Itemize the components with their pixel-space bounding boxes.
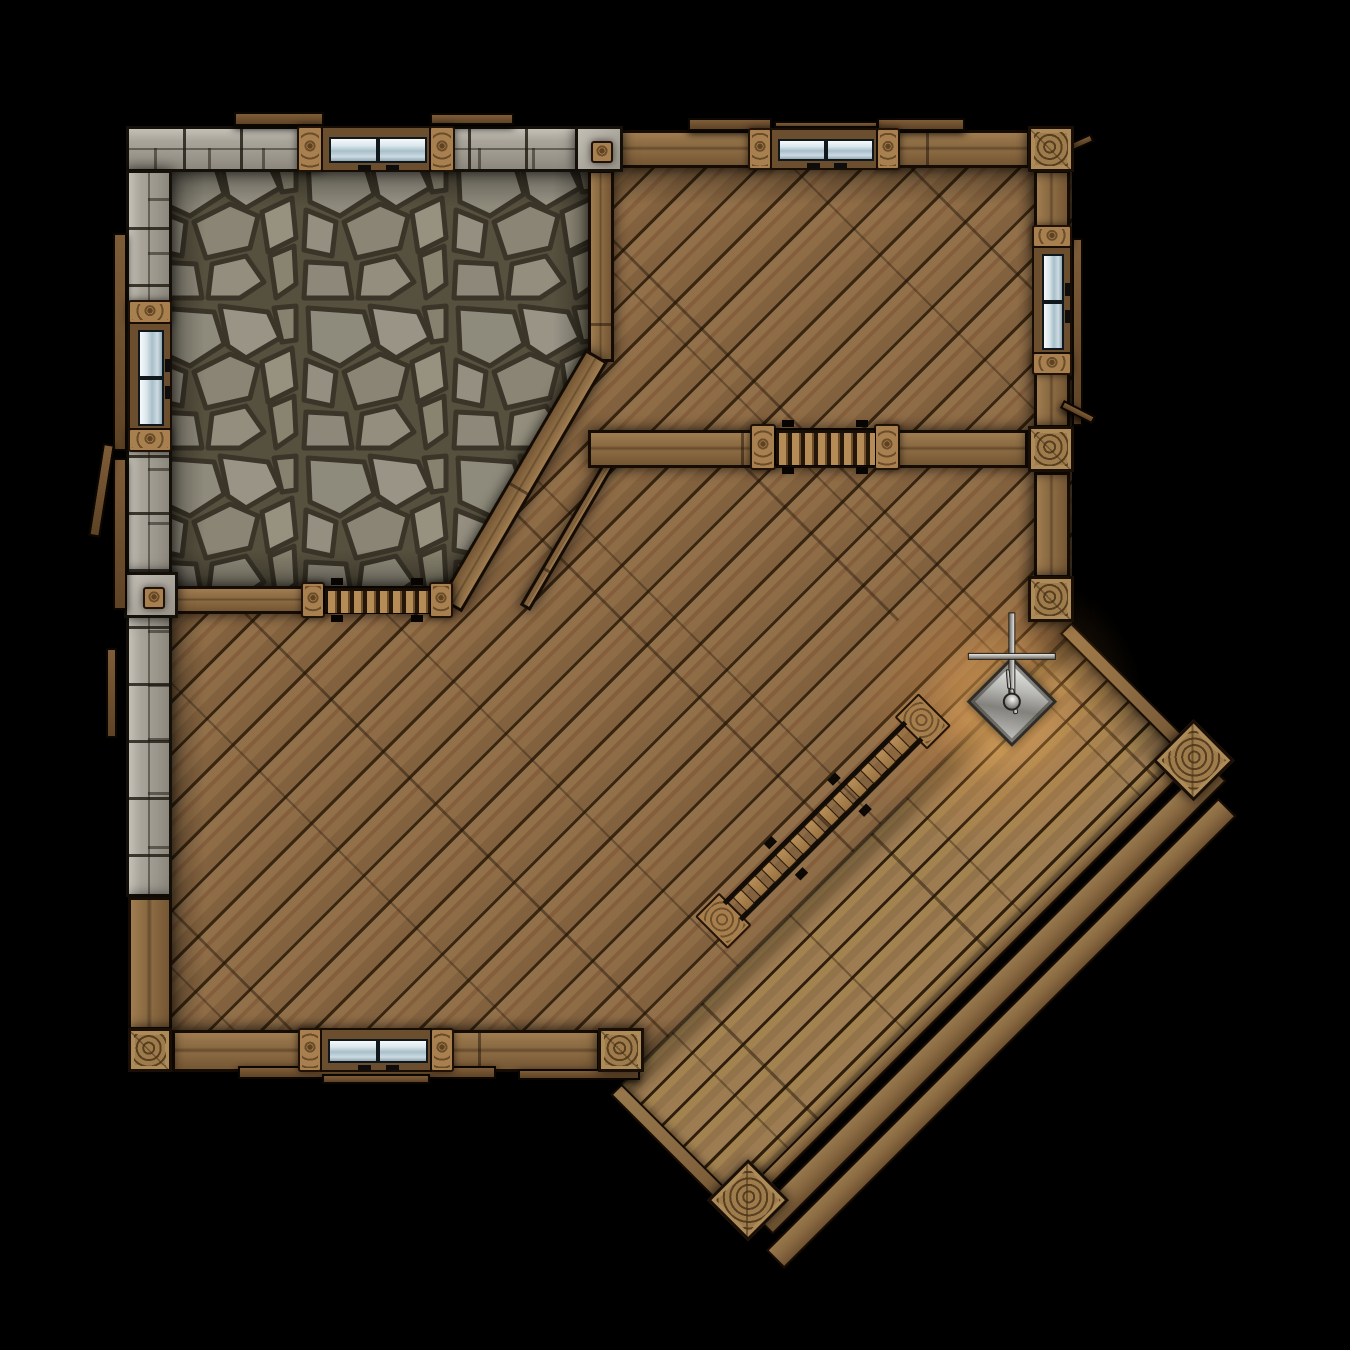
deck-corner-post-east: [1153, 719, 1235, 801]
window-north-west-glass-divider: [376, 137, 380, 163]
shutter-window-stone-room-bracket-3: [331, 615, 343, 622]
stone-room-east-wall: [588, 170, 614, 362]
window-west: [128, 300, 172, 452]
shutter-window-partition-post-left: [750, 424, 776, 470]
window-east-latch-2: [1065, 310, 1070, 323]
window-west-latch-1: [165, 359, 170, 372]
shutter-window-partition-post-right: [874, 424, 900, 470]
shutter-window-stone-room-slats: [328, 591, 430, 613]
window-north-west: [297, 126, 455, 172]
corner-post-north-east: [1028, 126, 1074, 172]
window-north-west-latch-2: [386, 165, 399, 170]
roof-board-west-3: [88, 443, 115, 538]
shutter-window-stone-room-bracket-4: [411, 615, 423, 622]
window-west-post-top: [128, 300, 172, 324]
shutter-window-stone-room-frame: [323, 586, 431, 614]
outer-wall-east-lower: [1034, 472, 1070, 578]
window-south-post-left: [298, 1028, 322, 1072]
window-north-east-frame: [770, 128, 878, 170]
window-south-latch-2: [386, 1065, 399, 1070]
window-south-glass-divider: [376, 1039, 380, 1063]
wall-junction-block-north: [575, 126, 623, 172]
east-wall-end-post: [1028, 576, 1074, 622]
window-south-frame: [320, 1028, 432, 1072]
tavern-battle-map: [0, 0, 1350, 1350]
shutter-window-stone-room: [301, 582, 453, 618]
outer-wall-west-wood: [128, 897, 172, 1030]
deck-edge-beam-ne: [1060, 622, 1207, 769]
window-north-east-glass-divider: [824, 139, 828, 161]
window-east-glass-divider: [1042, 300, 1064, 304]
shutter-window-stone-room-post-right: [429, 582, 453, 618]
window-west-glass-divider: [138, 376, 164, 380]
window-south-post-right: [430, 1028, 454, 1072]
wall-junction-block-north-knot-icon: [591, 141, 613, 163]
deck-corner-post-south: [707, 1159, 789, 1241]
shutter-window-partition-bracket-4: [856, 467, 868, 474]
shutter-window-partition-slats: [779, 433, 875, 465]
roof-board-west-1: [113, 233, 127, 451]
shutter-window-stone-room-bracket-2: [411, 578, 423, 585]
south-wall-end-post: [598, 1028, 644, 1072]
window-west-frame: [128, 322, 172, 430]
window-east-frame: [1032, 246, 1072, 354]
shutter-window-partition-bracket-3: [782, 467, 794, 474]
window-south-latch-1: [358, 1065, 371, 1070]
deck-edge-beam-sw: [610, 1083, 749, 1222]
roof-board-north-1: [234, 112, 324, 126]
corner-post-south-west: [128, 1028, 172, 1072]
shutter-window-partition: [750, 424, 900, 470]
window-north-east-latch-1: [807, 163, 820, 168]
window-north-west-frame: [321, 126, 431, 172]
shutter-window-stone-room-post-left: [301, 582, 325, 618]
roof-board-north-2: [430, 113, 514, 125]
window-north-east-latch-2: [834, 163, 847, 168]
wall-junction-block-west: [124, 572, 178, 618]
roof-board-west-2: [113, 458, 127, 610]
roof-board-east-1: [1072, 238, 1083, 426]
shutter-window-partition-frame: [774, 428, 876, 466]
shutter-window-partition-bracket-2: [856, 420, 868, 427]
window-north-west-post-left: [297, 126, 323, 172]
shutter-window-partition-bracket-1: [782, 420, 794, 427]
window-north-west-post-right: [429, 126, 455, 172]
window-west-latch-2: [165, 386, 170, 399]
window-west-post-bottom: [128, 428, 172, 452]
window-north-east-post-right: [876, 128, 900, 170]
wall-junction-block-west-knot-icon: [143, 587, 165, 609]
window-east-latch-1: [1065, 283, 1070, 296]
east-wall-junction-post: [1028, 426, 1074, 472]
window-east-post-top: [1032, 225, 1072, 248]
window-north-east: [748, 128, 900, 170]
shutter-window-stone-room-bracket-1: [331, 578, 343, 585]
roof-board-south-2: [322, 1074, 430, 1084]
window-south: [298, 1028, 454, 1072]
roof-board-north-5: [774, 121, 878, 128]
window-east: [1032, 225, 1072, 375]
outer-wall-west-stone: [126, 170, 172, 897]
roof-board-west-4: [106, 648, 117, 738]
window-north-east-post-left: [748, 128, 772, 170]
window-north-west-latch-1: [358, 165, 371, 170]
window-east-post-bottom: [1032, 352, 1072, 375]
